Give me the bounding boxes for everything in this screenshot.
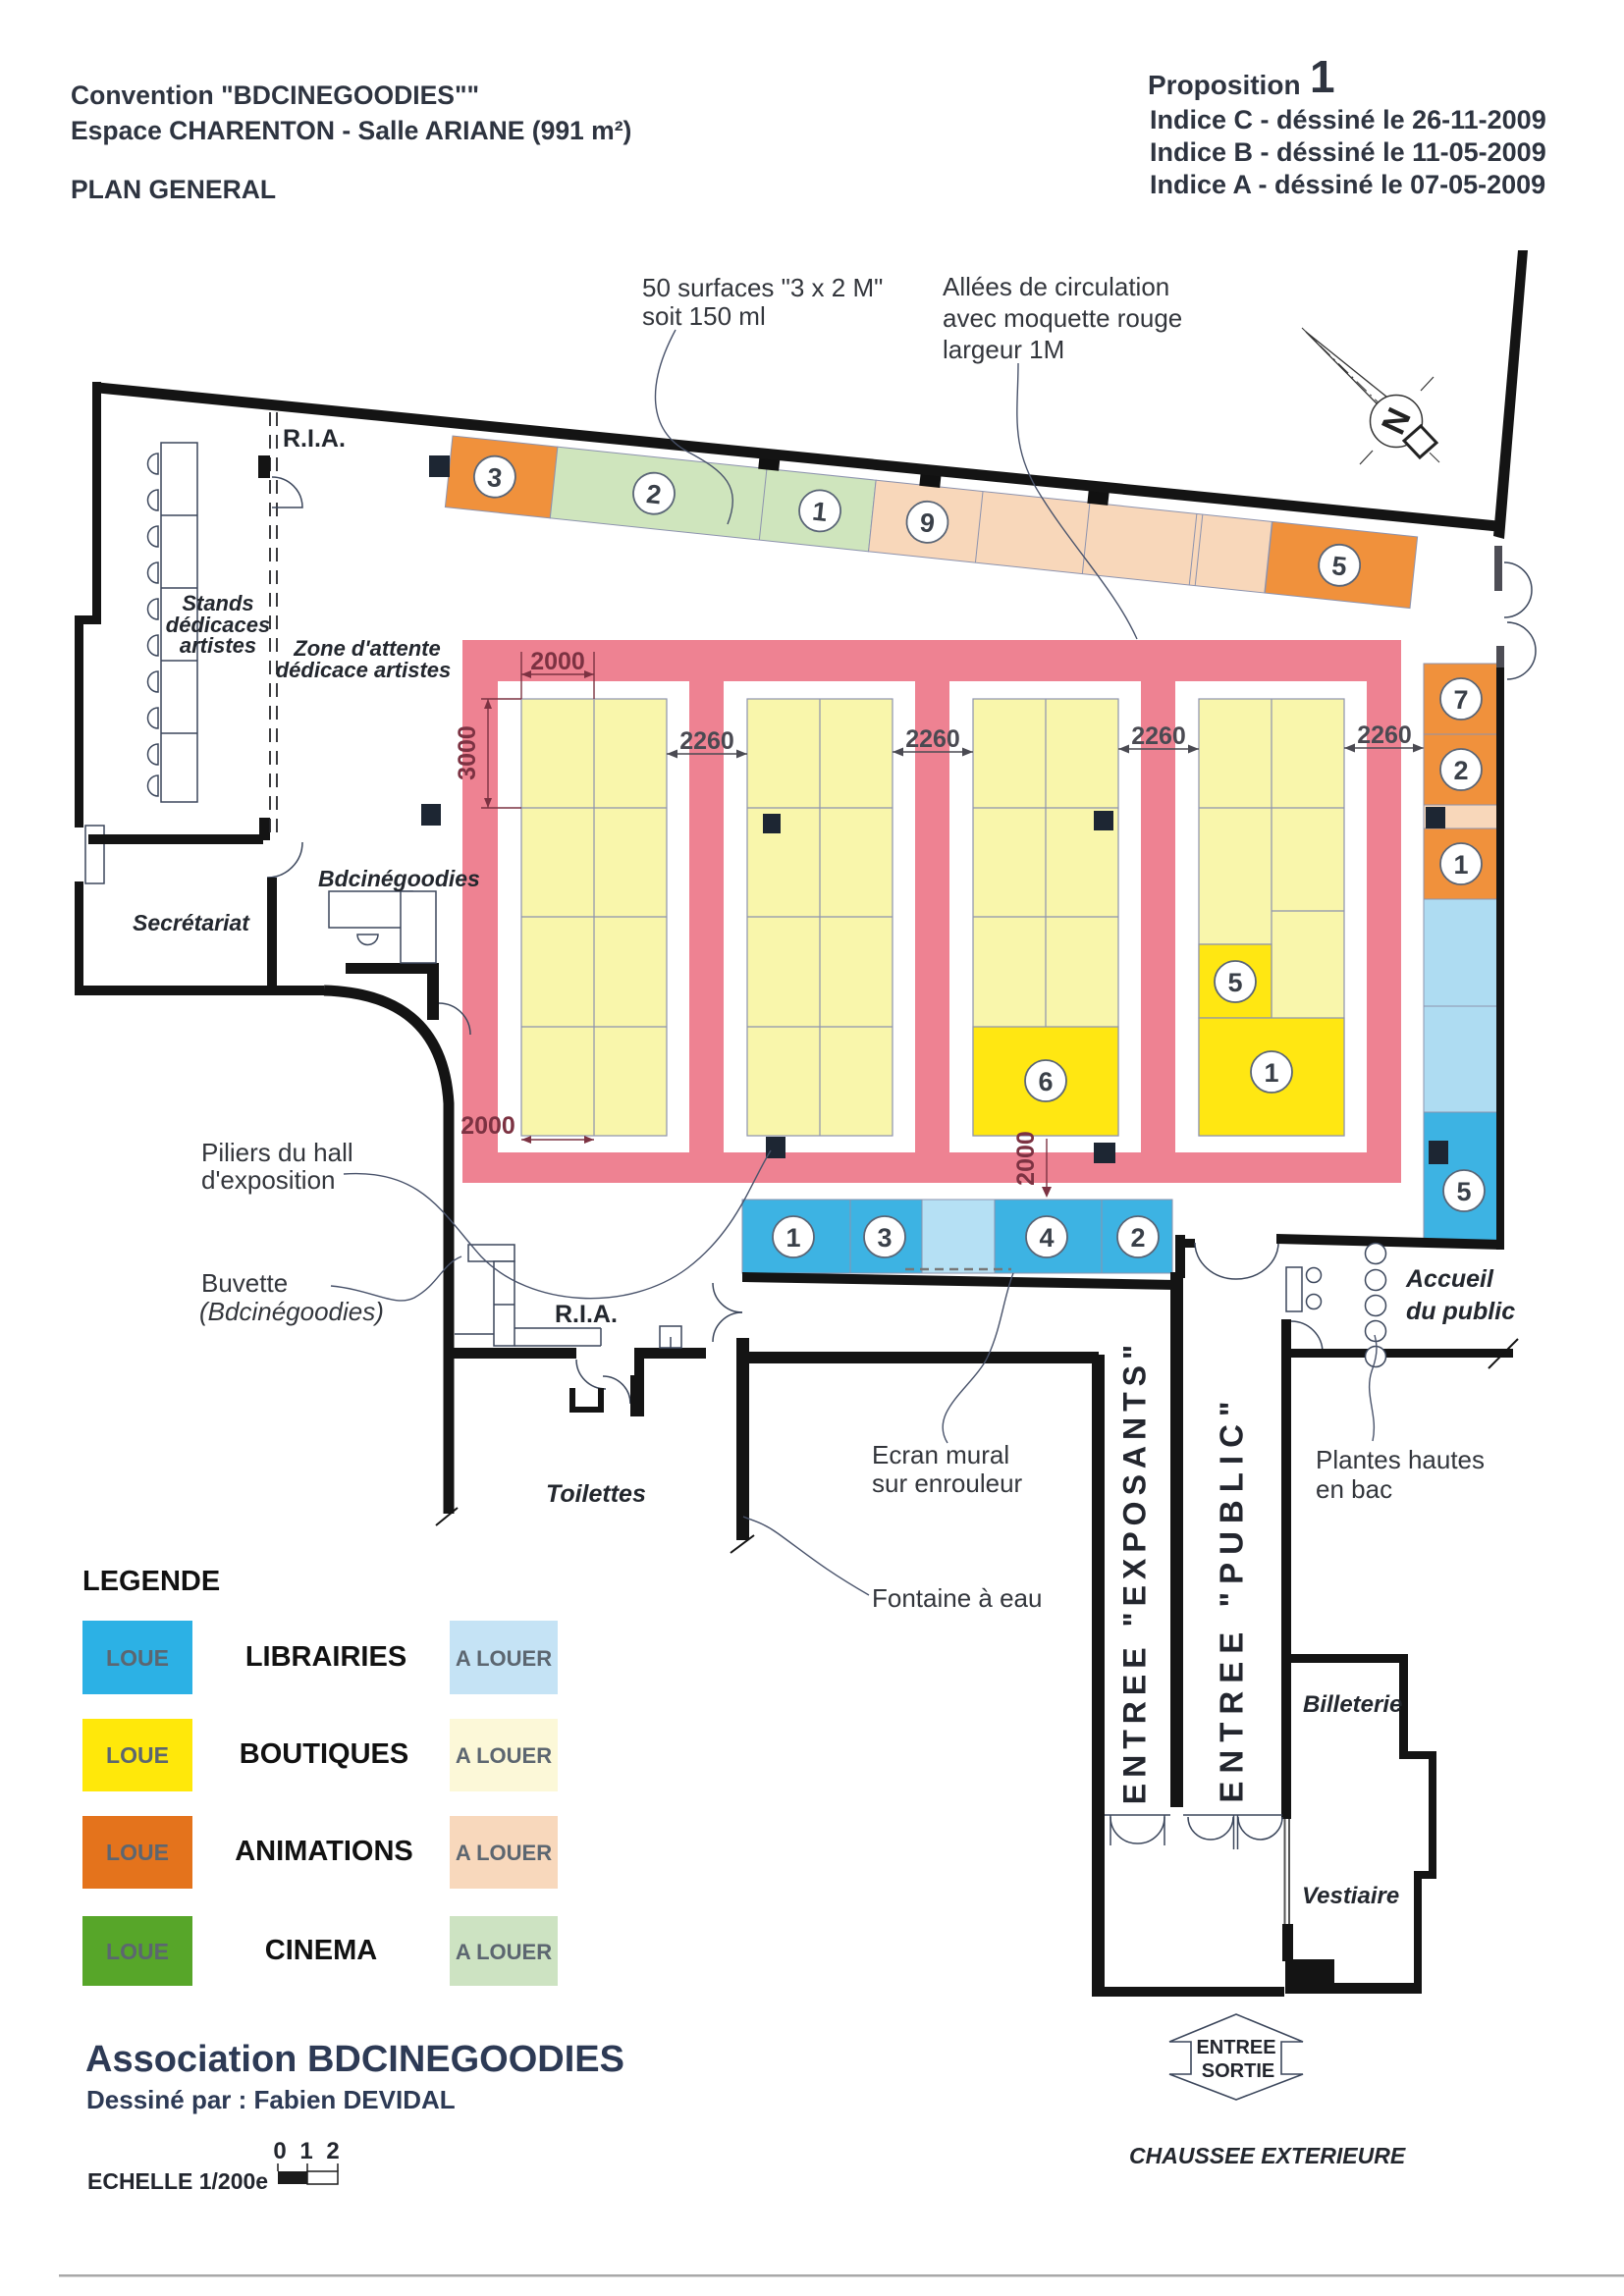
svg-text:2: 2 [1453,756,1468,785]
svg-text:SORTIE: SORTIE [1202,2060,1274,2082]
svg-text:Indice A - déssiné le 07-05-20: Indice A - déssiné le 07-05-2009 [1150,170,1545,199]
svg-text:1: 1 [785,1223,800,1253]
svg-text:A LOUER: A LOUER [456,1841,552,1865]
svg-text:Association BDCINEGOODIES: Association BDCINEGOODIES [85,2039,624,2080]
svg-text:1: 1 [299,2138,312,2164]
svg-text:Espace CHARENTON - Salle ARIAN: Espace CHARENTON - Salle ARIANE (991 m²) [71,116,631,145]
svg-text:d'exposition: d'exposition [201,1165,336,1195]
svg-text:0: 0 [273,2138,286,2164]
svg-text:9: 9 [918,507,936,538]
svg-text:2260: 2260 [1131,722,1186,750]
svg-text:LOUE: LOUE [106,1840,169,1865]
svg-text:2000: 2000 [1012,1131,1040,1186]
svg-text:Plantes hautes: Plantes hautes [1316,1445,1485,1474]
svg-text:Buvette: Buvette [201,1268,288,1298]
svg-text:2000: 2000 [460,1112,515,1140]
svg-text:Ecran mural: Ecran mural [872,1440,1009,1469]
svg-text:Accueil: Accueil [1405,1265,1494,1293]
svg-text:Indice B - déssiné le 11-05-20: Indice B - déssiné le 11-05-2009 [1150,137,1546,167]
svg-text:Toilettes: Toilettes [546,1480,646,1508]
svg-text:R.I.A.: R.I.A. [555,1301,618,1328]
svg-text:3000: 3000 [454,725,481,780]
svg-text:CHAUSSEE EXTERIEURE: CHAUSSEE EXTERIEURE [1129,2143,1406,2168]
svg-text:Indice C - déssiné le 26-11-20: Indice C - déssiné le 26-11-2009 [1150,105,1546,134]
svg-text:5: 5 [1227,968,1242,997]
svg-text:Secrétariat: Secrétariat [133,910,250,935]
svg-text:artistes: artistes [180,633,256,658]
svg-text:largeur 1M: largeur 1M [943,335,1064,364]
svg-text:du public: du public [1406,1298,1515,1325]
svg-text:ECHELLE 1/200e: ECHELLE 1/200e [87,2168,268,2194]
svg-text:Convention "BDCINEGOODIES"": Convention "BDCINEGOODIES"" [71,80,479,110]
svg-text:A LOUER: A LOUER [456,1743,552,1768]
svg-text:6: 6 [1038,1067,1053,1096]
svg-text:Proposition: Proposition [1148,70,1301,100]
svg-text:A LOUER: A LOUER [456,1646,552,1671]
svg-text:Dessiné par : Fabien DEVIDAL: Dessiné par : Fabien DEVIDAL [86,2085,456,2114]
svg-text:Vestiaire: Vestiaire [1302,1883,1399,1909]
svg-text:PLAN GENERAL: PLAN GENERAL [71,175,276,204]
svg-text:2260: 2260 [905,725,960,753]
svg-text:3: 3 [877,1223,892,1253]
svg-text:dédicace artistes: dédicace artistes [276,658,452,682]
svg-text:LOUE: LOUE [106,1742,169,1768]
svg-text:3: 3 [486,462,504,493]
svg-text:2: 2 [645,479,663,509]
svg-text:R.I.A.: R.I.A. [283,425,346,453]
svg-text:7: 7 [1453,685,1468,715]
svg-text:5: 5 [1330,551,1348,581]
svg-text:sur enrouleur: sur enrouleur [872,1468,1023,1498]
svg-text:en bac: en bac [1316,1474,1392,1504]
svg-text:Billeterie: Billeterie [1303,1691,1402,1718]
svg-text:2260: 2260 [679,727,734,755]
svg-text:1: 1 [1264,1058,1278,1088]
svg-text:ENTREE "EXPOSANTS": ENTREE "EXPOSANTS" [1116,1339,1152,1804]
svg-text:1: 1 [811,497,829,527]
svg-text:A LOUER: A LOUER [456,1940,552,1964]
svg-text:5: 5 [1456,1177,1471,1206]
svg-text:4: 4 [1039,1223,1054,1253]
svg-text:ANIMATIONS: ANIMATIONS [235,1836,413,1867]
svg-text:avec moquette rouge: avec moquette rouge [943,303,1182,333]
svg-text:LOUE: LOUE [106,1645,169,1671]
svg-text:1: 1 [1453,850,1468,880]
svg-text:ENTREE "PUBLIC": ENTREE "PUBLIC" [1214,1393,1250,1802]
svg-text:Allées de circulation: Allées de circulation [943,272,1169,301]
svg-text:Bdcinégoodies: Bdcinégoodies [318,866,480,891]
svg-text:2000: 2000 [530,648,585,675]
svg-text:50 surfaces "3 x 2 M": 50 surfaces "3 x 2 M" [642,273,883,302]
svg-text:(Bdcinégoodies): (Bdcinégoodies) [199,1297,384,1326]
svg-text:LEGENDE: LEGENDE [82,1566,220,1597]
svg-text:2260: 2260 [1357,721,1412,749]
svg-text:BOUTIQUES: BOUTIQUES [240,1738,408,1770]
svg-text:2: 2 [1130,1223,1145,1253]
svg-text:soit 150 ml: soit 150 ml [642,301,766,331]
svg-text:CINEMA: CINEMA [265,1935,377,1966]
svg-text:Fontaine à eau: Fontaine à eau [872,1583,1042,1613]
svg-text:LIBRAIRIES: LIBRAIRIES [245,1641,406,1673]
svg-text:LOUE: LOUE [106,1939,169,1964]
svg-text:ENTREE: ENTREE [1196,2037,1275,2058]
svg-text:Piliers du hall: Piliers du hall [201,1138,353,1167]
svg-text:2: 2 [326,2138,339,2164]
svg-text:1: 1 [1310,51,1335,102]
